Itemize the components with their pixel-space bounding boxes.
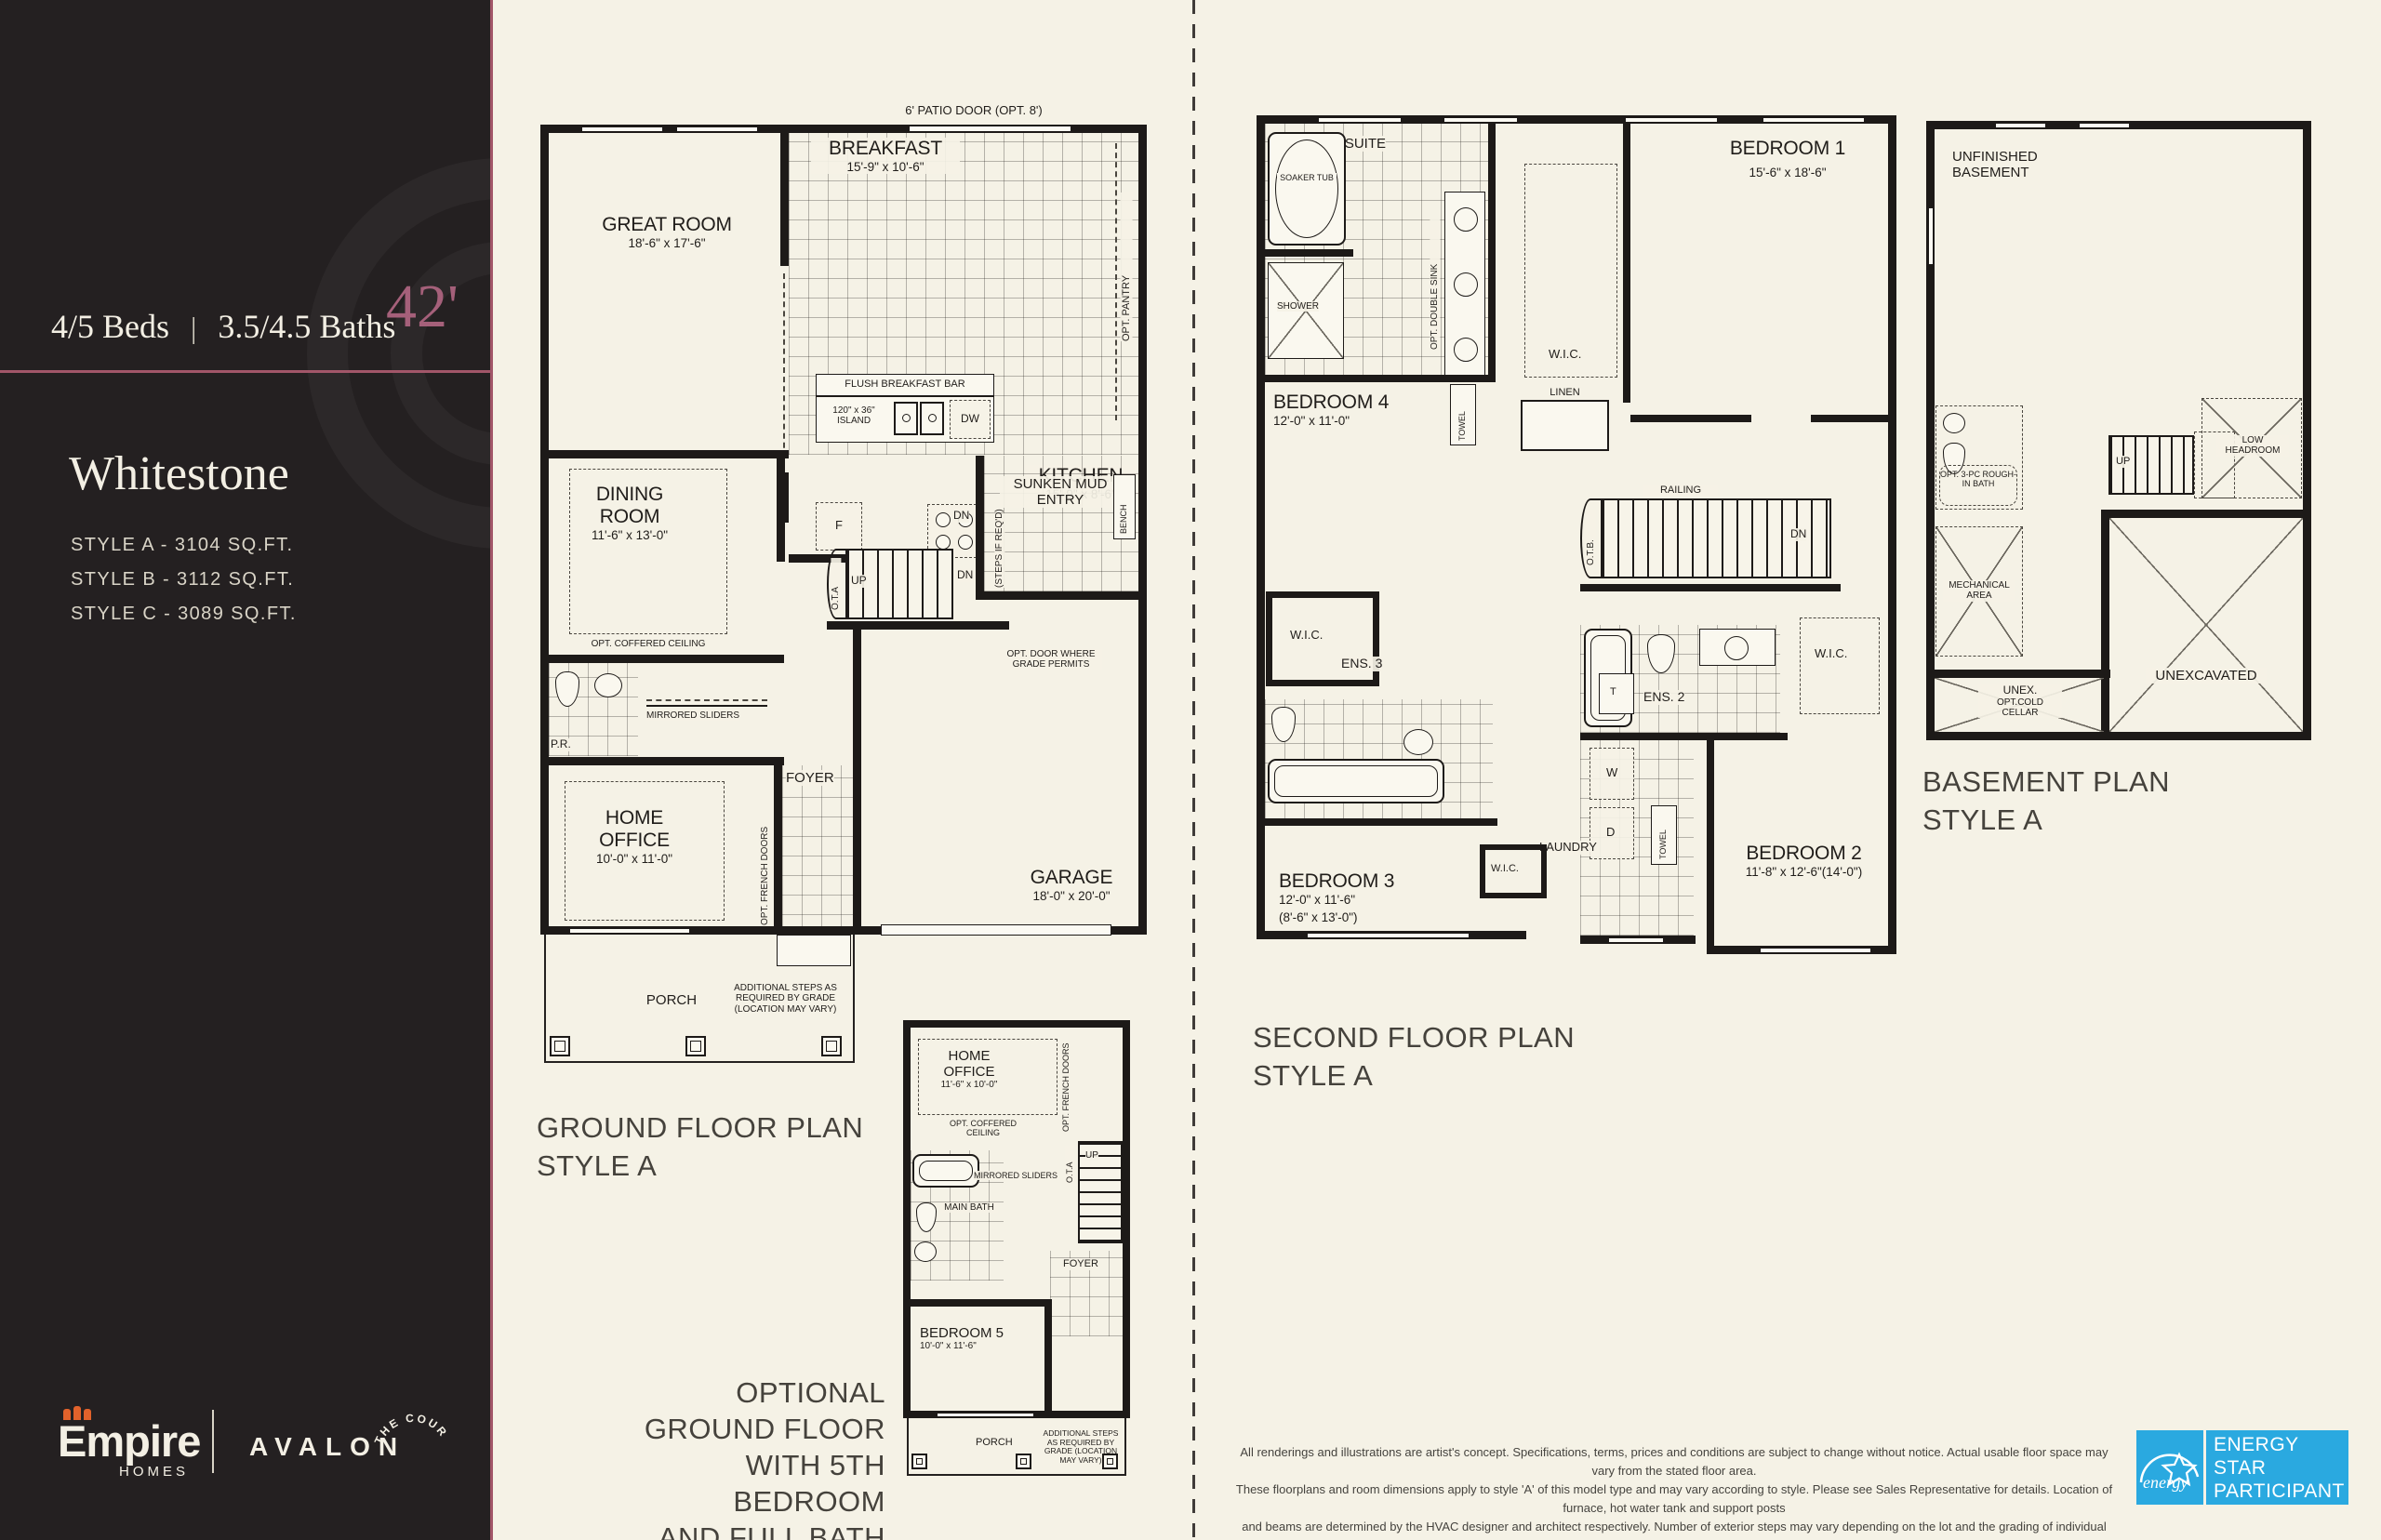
room-name: BEDROOM 4 [1273,392,1389,414]
wall [976,591,1147,600]
room-dims: 11'-6" x 10'-0" [927,1080,1011,1090]
wall [1630,415,1751,422]
wall [853,621,861,935]
dn2-label: DN [957,569,973,582]
energy-script-label: energy [2143,1473,2188,1493]
foyer-label: FOYER [1063,1258,1098,1270]
room-dims: 15'-6" x 18'-6" [1690,166,1885,179]
plan-title-line2: STYLE A [537,1147,863,1185]
room-name: BEDROOM 2 [1718,843,1890,865]
wall [1580,733,1788,740]
island-sink-left [894,402,918,435]
window [2079,123,2130,128]
cold-cellar-label: UNEX. OPT.COLD CELLAR [1978,684,2062,718]
wic2-label: W.I.C. [1290,629,1323,643]
soaker-tub-label: SOAKER TUB [1277,173,1337,182]
porch-post [1102,1454,1118,1469]
ground-floor-title: GROUND FLOOR PLAN STYLE A [537,1109,863,1185]
bench-label: BENCH [1119,480,1128,534]
room-dims: 10'-0" x 11'-0" [583,852,685,866]
energy-star-text: ENERGY STAR PARTICIPANT [2206,1430,2348,1505]
porch-post [911,1454,927,1469]
lot-width-badge: 42' [386,272,459,342]
wall [780,125,789,266]
tub-cabinet [1599,673,1634,714]
wall [903,1020,911,1418]
wall [2101,510,2311,518]
window [937,1413,1034,1417]
wall [774,757,782,935]
wall [540,655,784,663]
window [1625,117,1718,123]
style-c-sqft: STYLE C - 3089 SQ.FT. [71,597,297,631]
unexcavated-area [2109,518,2303,732]
window [1762,117,1865,123]
up-label: UP [1085,1150,1098,1161]
room-dims: 10'-0" x 11'-6" [920,1341,1004,1351]
energy-line3: PARTICIPANT [2214,1480,2348,1503]
room-dims: 12'-0" x 11'-0" [1273,414,1389,428]
room-name: DINING ROOM [579,484,681,528]
washer-label: W [1606,766,1617,780]
cold-cellar-line: CELLAR [1978,708,2062,718]
low-headroom-label: LOW HEADROOM [2216,435,2289,457]
patio-door [909,126,1071,132]
pantry-dashed [1115,143,1117,420]
style-a-sqft: STYLE A - 3104 SQ.FT. [71,528,297,563]
wall [1265,249,1353,257]
fridge-label: F [816,519,862,533]
beds-baths-separator: | [178,311,209,344]
foyer-label: FOYER [786,770,834,786]
porch-post [550,1036,570,1056]
energy-star-icon: energy [2136,1430,2203,1505]
disclaimer-line1: All renderings and illustrations are art… [1232,1443,2116,1480]
wall [1926,670,2110,678]
up-label: UP [2116,456,2130,468]
dn-label: DN [1790,528,1806,541]
room-name: BEDROOM 1 [1690,138,1885,160]
sidebar-horizontal-rule [0,370,493,373]
window [581,126,663,132]
garage-door [881,924,1111,936]
up-label: UP [851,575,867,588]
dryer-label: D [1606,826,1615,840]
towel2-label: TOWEL [1658,811,1668,859]
wall [1138,125,1147,935]
additional-steps-label: ADDITIONAL STEPS AS REQUIRED BY GRADE (L… [727,983,844,1015]
dn-label: DN [953,510,969,523]
energy-star-badge: energy ENERGY STAR PARTICIPANT [2136,1430,2348,1505]
room-dims: 15'-9" x 10'-6" [811,160,960,174]
room-dims: 12'-0" x 11'-6" [1279,893,1394,907]
logo-divider [212,1410,214,1473]
plan-title-line1: SECOND FLOOR PLAN [1253,1018,1575,1056]
wic1-outline [1524,164,1617,378]
dining-room-label: DINING ROOM 11'-6" x 13'-0" [579,484,681,542]
sink [594,673,622,697]
wall [1811,415,1896,422]
shower-label: SHOWER [1277,301,1319,312]
ota-label: O.T.A [831,558,841,610]
disclaimer-line3: and beams are determined by the HVAC des… [1232,1518,2116,1540]
second-floor-plan: ENSUITE SOAKER TUB SHOWER OPT. DOUBLE SI… [1253,108,1904,991]
empire-wordmark: Empire [58,1415,200,1467]
wall [2101,732,2311,740]
caption-line: WITH 5TH BEDROOM [644,1447,885,1520]
great-room-label: GREAT ROOM 18'-6" x 17'-6" [565,214,769,250]
cold-cellar-line: OPT.COLD [1978,697,2062,708]
optional-ground-floor-plan: HOME OFFICE 11'-6" x 10'-0" OPT. COFFERE… [899,1020,1134,1485]
linen-label: LINEN [1521,387,1609,399]
page-divider-dashed [1192,0,1195,1540]
second-floor-title: SECOND FLOOR PLAN STYLE A [1253,1018,1575,1095]
wall [1123,1020,1130,1418]
caption-line: AND FULL BATH [644,1520,885,1540]
baths-label: 3.5/4.5 Baths [218,308,395,345]
bedroom2-label: BEDROOM 2 11'-8" x 12'-6"(14'-0") [1718,843,1890,879]
wall [1044,1299,1052,1418]
sidebar-edge-rule [490,0,493,1540]
window [1760,948,1871,953]
french-doors-label: OPT. FRENCH DOORS [760,809,770,925]
optional-plan-caption: OPTIONAL GROUND FLOOR WITH 5TH BEDROOM A… [644,1374,885,1540]
ens3-label: ENS. 3 [1341,657,1382,671]
island-size-label: 120" x 36" ISLAND [819,405,888,427]
model-name: Whitestone [69,446,289,501]
window [569,928,690,934]
porch-label: PORCH [630,992,713,1008]
opening-dashed [783,273,785,467]
wall [540,757,784,765]
room-name: BEDROOM 3 [1279,870,1394,893]
wic3-label: W.I.C. [1815,647,1847,661]
room-name: BEDROOM 5 [920,1325,1004,1341]
wic3-outline [1800,617,1880,714]
garage-label: GARAGE 18'-0" x 20'-0" [1011,867,1132,903]
room-name: GARAGE [1011,867,1132,889]
style-b-sqft: STYLE B - 3112 SQ.FT. [71,563,297,597]
sink [1403,729,1433,755]
wall [1257,115,1265,938]
window [1307,933,1470,938]
ground-floor-plan: 6' PATIO DOOR (OPT. 8') GREAT ROOM 18'-6… [537,104,1151,1174]
window [676,126,758,132]
room-name: BREAKFAST [811,138,960,160]
rough-in-bath-label: OPT. 3-PC ROUGH-IN BATH [1939,465,2017,506]
vanity [1699,629,1776,666]
caption-line: GROUND FLOOR [644,1411,885,1447]
mirrored-sliders-label: MIRRORED SLIDERS [646,710,739,721]
unexcavated-label: UNEXCAVATED [2146,668,2267,684]
sidebar: 4/5 Beds | 3.5/4.5 Baths 42' Whitestone … [0,0,493,1540]
wall [903,1020,1130,1028]
wic4-label: W.I.C. [1491,863,1519,875]
energy-line2: STAR [2214,1456,2348,1480]
caption-line: OPTIONAL [644,1374,885,1411]
towel-label: TOWEL [1457,389,1467,441]
plan-title-line1: GROUND FLOOR PLAN [537,1109,863,1147]
window [1995,123,2046,128]
laundry-label: LAUNDRY [1539,841,1597,855]
sink [1943,413,1965,433]
floorplan-brochure-page: 4/5 Beds | 3.5/4.5 Baths 42' Whitestone … [0,0,2381,1540]
soaker-tub [1268,132,1346,246]
style-sqft-list: STYLE A - 3104 SQ.FT. STYLE B - 3112 SQ.… [71,528,297,631]
powder-room-label: P.R. [551,738,571,751]
linen-closet [1521,400,1609,451]
room-dims: 11'-8" x 12'-6"(14'-0") [1718,865,1890,879]
beds-baths-line: 4/5 Beds | 3.5/4.5 Baths [51,307,395,346]
coffered-label: OPT. COFFERED CEILING [932,1119,1034,1138]
wall [1580,584,1841,591]
window [1928,207,1934,265]
wall [1888,115,1896,954]
unfinished-basement-label: UNFINISHED BASEMENT [1952,149,2073,180]
bedroom4-label: BEDROOM 4 12'-0" x 11'-0" [1273,392,1389,428]
wall [1265,818,1497,826]
plan-title-line2: STYLE A [1922,801,2170,839]
porch-post [1016,1454,1031,1469]
wall [540,125,549,935]
room-dims: 18'-0" x 20'-0" [1011,889,1132,903]
energy-line1: ENERGY [2214,1433,2348,1456]
ens2-label: ENS. 2 [1643,690,1684,705]
t-label: T [1610,686,1616,698]
bedroom1-label: BEDROOM 1 15'-6" x 18'-6" [1690,138,1885,179]
disclaimer-line2: These floorplans and room dimensions app… [1232,1480,2116,1518]
french-doors-label: OPT. FRENCH DOORS [1061,1048,1071,1132]
wall [2303,121,2311,740]
opt-pantry-label: OPT. PANTRY [1121,192,1133,341]
opt-door-label: OPT. DOOR WHERE GRADE PERMITS [1000,649,1102,670]
home-office-label: HOME OFFICE 10'-0" x 11'-0" [583,807,685,866]
wall [1488,124,1496,377]
the-court-label: THE COURT [370,1391,450,1446]
room-dims-alt: (8'-6" x 13'-0") [1279,910,1394,924]
the-court-arc-logo: THE COURT [370,1391,454,1475]
empire-homes-label: HOMES [119,1464,189,1480]
disclaimer: All renderings and illustrations are art… [1232,1443,2116,1540]
room-dims: 11'-6" x 13'-0" [579,528,681,542]
porch-post [685,1036,706,1056]
patio-door-label: 6' PATIO DOOR (OPT. 8') [853,104,1095,118]
room-name: GREAT ROOM [565,214,769,236]
main-bath-label: MAIN BATH [940,1202,998,1213]
island-sink-right [920,402,944,435]
wall [1265,375,1496,382]
room-name: HOME OFFICE [583,807,685,852]
ota-label: O.T.A [1065,1146,1074,1183]
plan-title-line2: STYLE A [1253,1056,1575,1095]
mud-entry-label: SUNKEN MUD ENTRY [1000,476,1121,508]
closet-slider-line [646,705,767,707]
dishwasher-label: DW [950,413,991,426]
window [1608,937,1664,943]
bathtub [912,1154,979,1188]
bedroom5-label: BEDROOM 5 10'-0" x 11'-6" [920,1325,1004,1351]
window [1443,117,1518,123]
opt-double-sink-label: OPT. DOUBLE SINK [1430,219,1440,350]
mechanical-area-label: MECHANICAL AREA [1943,580,2015,602]
ensuite-vanity [1444,192,1485,376]
otb-label: O.T.B. [1586,510,1596,565]
wall [1926,732,2110,740]
wall [540,450,789,458]
wall [777,450,785,562]
opt-home-office-label: HOME OFFICE 11'-6" x 10'-0" [927,1048,1011,1091]
flush-breakfast-bar-label: FLUSH BREAKFAST BAR [816,378,994,391]
foyer-floor [782,765,853,935]
railing-label: RAILING [1643,485,1718,497]
wall [1707,740,1714,954]
window [1318,117,1402,123]
steps-if-reqd-label: (STEPS IF REQ'D) [994,513,1004,588]
bathtub [1268,759,1444,803]
energy-star-graphic [2136,1430,2203,1505]
cold-cellar-line: UNEX. [1978,684,2062,697]
plan-title-line1: BASEMENT PLAN [1922,763,2170,801]
wall [1623,124,1630,403]
mirrored-sliders-label: MIRRORED SLIDERS [974,1171,1057,1180]
room-dims: 18'-6" x 17'-6" [565,236,769,250]
wic1-label: W.I.C. [1549,348,1581,362]
closet-slider-line [646,699,767,701]
bedroom3-label: BEDROOM 3 12'-0" x 11'-6" (8'-6" x 13'-0… [1279,870,1394,925]
basement-plan: UNFINISHED BASEMENT OPT. 3-PC ROUGH-IN B… [1922,119,2317,854]
sink [914,1241,937,1262]
dining-coffered-label: OPT. COFFERED CEILING [583,639,713,649]
svg-text:THE COURT: THE COURT [370,1391,450,1446]
porch-post [821,1036,842,1056]
breakfast-label: BREAKFAST 15'-9" x 10'-6" [811,138,960,174]
wall [976,456,984,595]
wall [903,1299,1052,1307]
room-name: HOME OFFICE [927,1048,1011,1080]
porch-label: PORCH [976,1437,1013,1449]
beds-label: 4/5 Beds [51,308,169,345]
basement-title: BASEMENT PLAN STYLE A [1922,763,2170,839]
